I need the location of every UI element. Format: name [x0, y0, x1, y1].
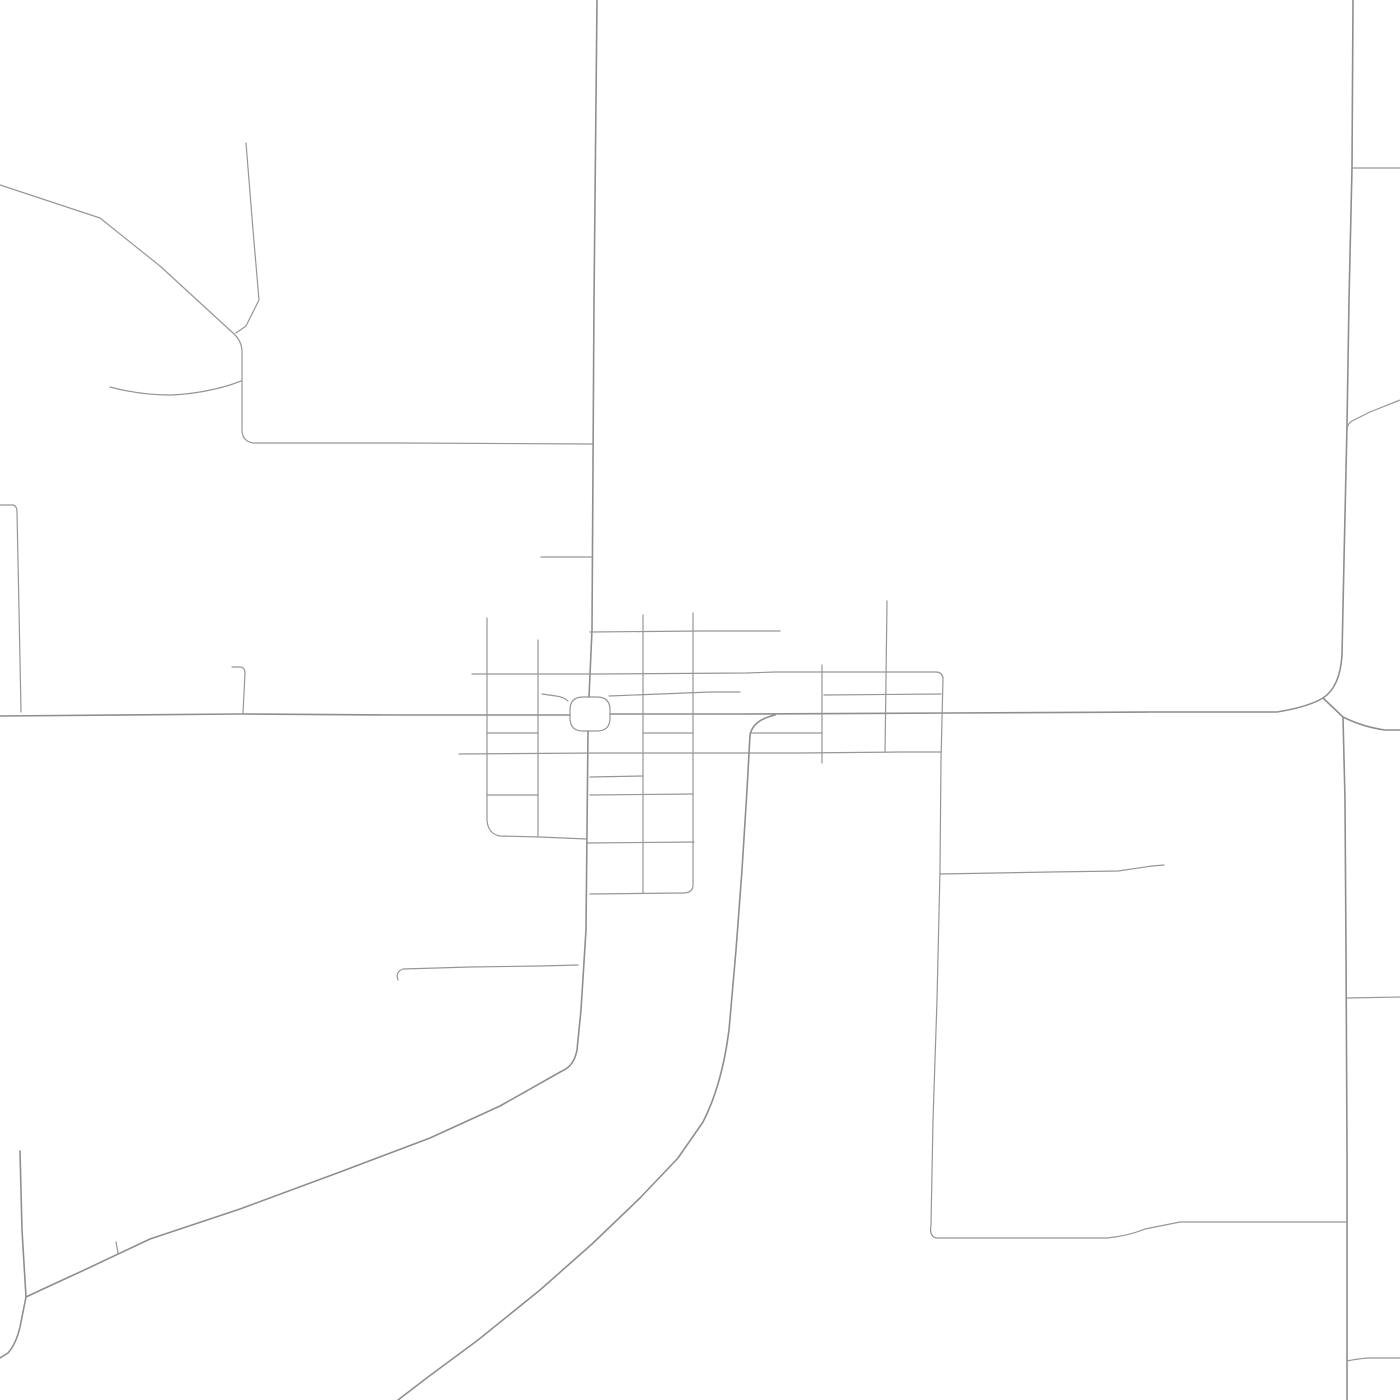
road-main-street-north [589, 0, 597, 697]
road-junction-connector [1323, 698, 1343, 717]
road-east-branch-1358 [1347, 1358, 1400, 1361]
road-highway-west [0, 714, 570, 716]
map-viewport [0, 0, 1400, 1400]
road-nw-diagonal [0, 185, 592, 444]
road-town-square-loop [570, 697, 610, 731]
road-nw-wavy-branch [110, 381, 241, 395]
road-nw-branch-vertical [236, 143, 259, 333]
road-street-966 [397, 965, 578, 980]
road-street-777 [590, 776, 643, 777]
road-street-795-mid [590, 794, 693, 795]
road-highway-mid [610, 698, 1323, 714]
road-street-673-long [472, 672, 1347, 1238]
road-route-south [1343, 717, 1347, 1400]
road-highway-east [1343, 717, 1400, 730]
road-street-843 [587, 842, 694, 843]
road-west-vertical-bottom [0, 1151, 26, 1358]
road-east-branch-998 [1347, 997, 1400, 998]
road-tick-1247 [116, 1242, 118, 1253]
road-street-694-east [609, 692, 740, 696]
road-street-872 [940, 865, 1164, 874]
road-street-694-west [542, 694, 568, 701]
road-street-630 [590, 631, 780, 632]
road-block-right-695 [824, 694, 941, 695]
road-street-753-long [459, 752, 941, 754]
road-route-north [1323, 0, 1353, 698]
road-ne-diagonal [1347, 400, 1400, 429]
road-main-street-south [26, 731, 588, 1297]
road-vertical-886 [885, 601, 887, 752]
road-vertical-487 [487, 618, 587, 839]
road-west-stub [0, 505, 21, 712]
road-map-canvas [0, 0, 1400, 1400]
road-stub-232 [232, 667, 245, 713]
